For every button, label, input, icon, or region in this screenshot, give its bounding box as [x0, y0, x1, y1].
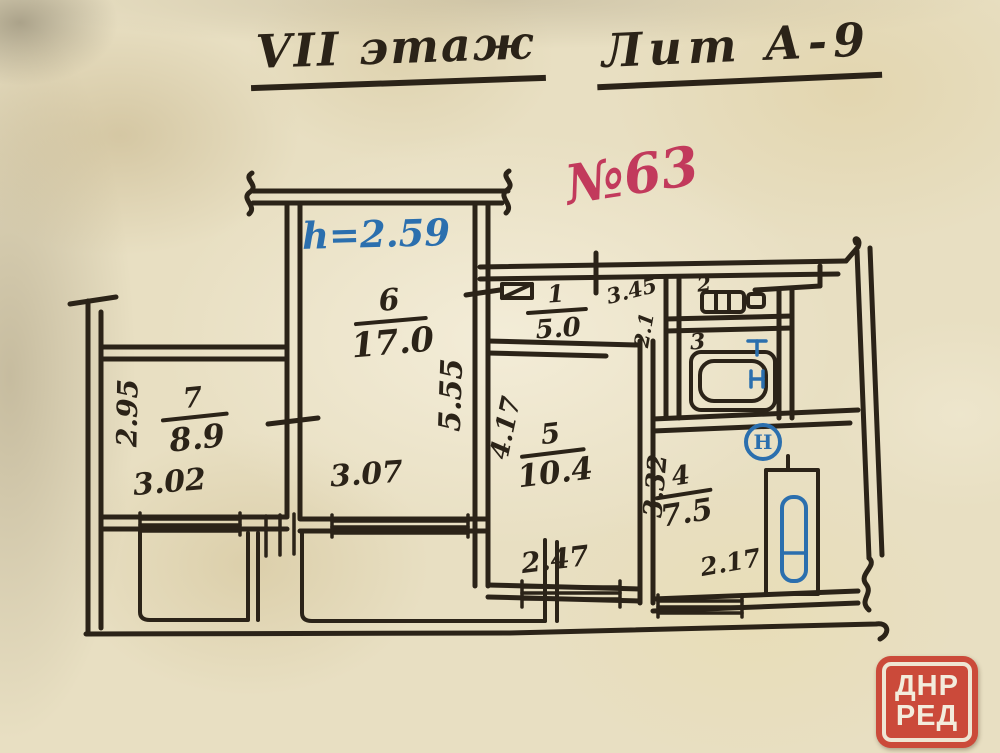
water-symbol-letter: Н: [754, 430, 773, 454]
scanned-floor-plan: VII этаж Лит А-9 №63 h=2.59 6 17.0 7 8.9…: [0, 0, 1000, 753]
balcony-outlines: [140, 531, 557, 621]
watermark-line-2: РЕД: [896, 702, 958, 732]
dim-3-02: 3.02: [132, 465, 207, 501]
bathroom-number: 3: [689, 330, 706, 353]
corridor-label: 1 5.0: [516, 279, 598, 344]
watermark-inner-frame: ДНР РЕД: [882, 662, 972, 742]
corridor-area: 5.0: [518, 313, 598, 344]
dim-2-95: 2.95: [113, 363, 143, 463]
toilet-number: 2: [696, 273, 712, 294]
watermark-line-1: ДНР: [895, 672, 959, 702]
room-6-label: 6 17.0: [342, 282, 440, 364]
water-symbol-circle: Н: [744, 423, 782, 461]
dim-3-07: 3.07: [329, 457, 404, 492]
title-floor: VII этаж: [249, 19, 546, 91]
vent-shaft: [766, 456, 818, 594]
title-liter: Лит А-9: [595, 16, 883, 90]
ceiling-height-note: h=2.59: [302, 214, 451, 255]
room-6-area: 17.0: [345, 322, 440, 364]
dim-5-55: 5.55: [435, 340, 469, 451]
room-7-label: 7 8.9: [149, 380, 242, 459]
dim-2-47: 2.47: [520, 542, 591, 578]
corridor-number: 1: [516, 279, 595, 308]
floor-plan-drawing: [0, 0, 1000, 753]
watermark-badge: ДНР РЕД: [876, 656, 978, 748]
room-5-label: 5 10.4: [508, 415, 598, 493]
